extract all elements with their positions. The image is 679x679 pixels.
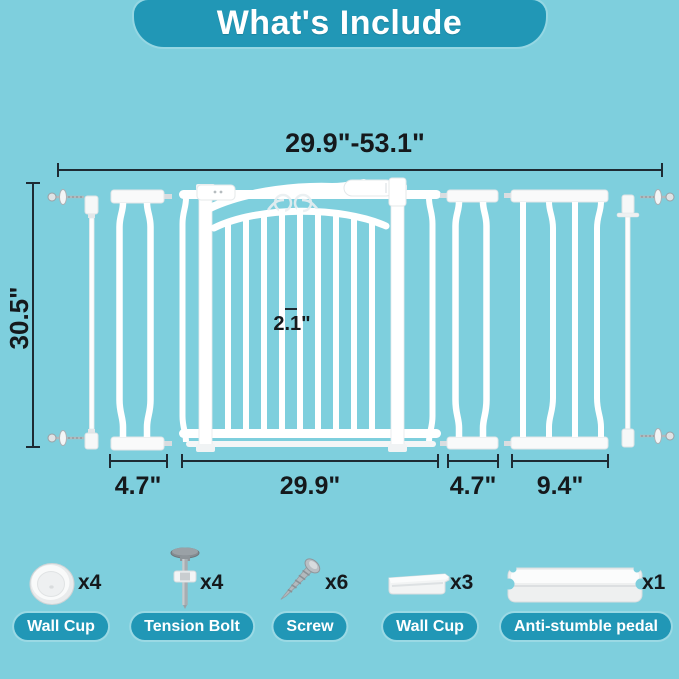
dim-line-total-width — [58, 163, 662, 177]
screw-icon — [275, 556, 322, 606]
anti-stumble-pedal-count: x1 — [642, 572, 665, 593]
wall-bolt-bottom-right-icon — [640, 429, 674, 444]
tension-bolt-count: x4 — [200, 572, 223, 593]
wall-cup-bracket-label: Wall Cup — [383, 613, 477, 640]
anti-stumble-pedal-icon — [504, 566, 647, 603]
anti-stumble-pedal-label: Anti-stumble pedal — [501, 613, 671, 640]
dim-line-left-extension — [110, 454, 167, 468]
wall-cup-bracket-icon — [389, 574, 449, 594]
gate-width-label: 29.9" — [280, 474, 341, 499]
right-large-extension-width-label: 9.4" — [537, 474, 584, 499]
gate-latch — [197, 185, 235, 200]
extension-right-small — [440, 190, 498, 449]
dim-line-right-large-extension — [512, 454, 608, 468]
wall-cup-round-count: x4 — [78, 572, 101, 593]
tension-bolt-icon — [171, 548, 199, 610]
right-small-extension-width-label: 4.7" — [450, 474, 497, 499]
wall-bolt-bottom-left-icon — [48, 431, 84, 446]
left-extension-width-label: 4.7" — [115, 474, 162, 499]
screw-count: x6 — [325, 572, 348, 593]
dim-line-gate-width — [182, 454, 438, 468]
extension-right-large — [504, 190, 608, 449]
header-banner: What's Include — [134, 0, 546, 47]
wall-bolt-top-left-icon — [48, 190, 84, 205]
screw-label: Screw — [273, 613, 346, 640]
bar-gap-label: 2.1" — [273, 314, 310, 334]
page-title: What's Include — [217, 4, 463, 43]
wall-cup-round-label: Wall Cup — [14, 613, 108, 640]
extension-left — [111, 190, 172, 450]
total-width-label: 29.9"-53.1" — [285, 130, 425, 157]
gate-handle — [344, 178, 406, 206]
tension-bolt-label: Tension Bolt — [131, 613, 253, 640]
wall-cup-round-icon — [30, 564, 74, 605]
tension-rod-left — [85, 196, 98, 449]
wall-bolt-top-right-icon — [640, 190, 674, 205]
dim-line-right-small-extension — [448, 454, 498, 468]
height-label: 30.5" — [6, 287, 32, 350]
tension-rod-right — [617, 195, 639, 447]
whats-included-infographic: What's Include 29.9"-53.1" 30.5" 2.1" 4.… — [0, 0, 679, 679]
wall-cup-bracket-count: x3 — [450, 572, 473, 593]
